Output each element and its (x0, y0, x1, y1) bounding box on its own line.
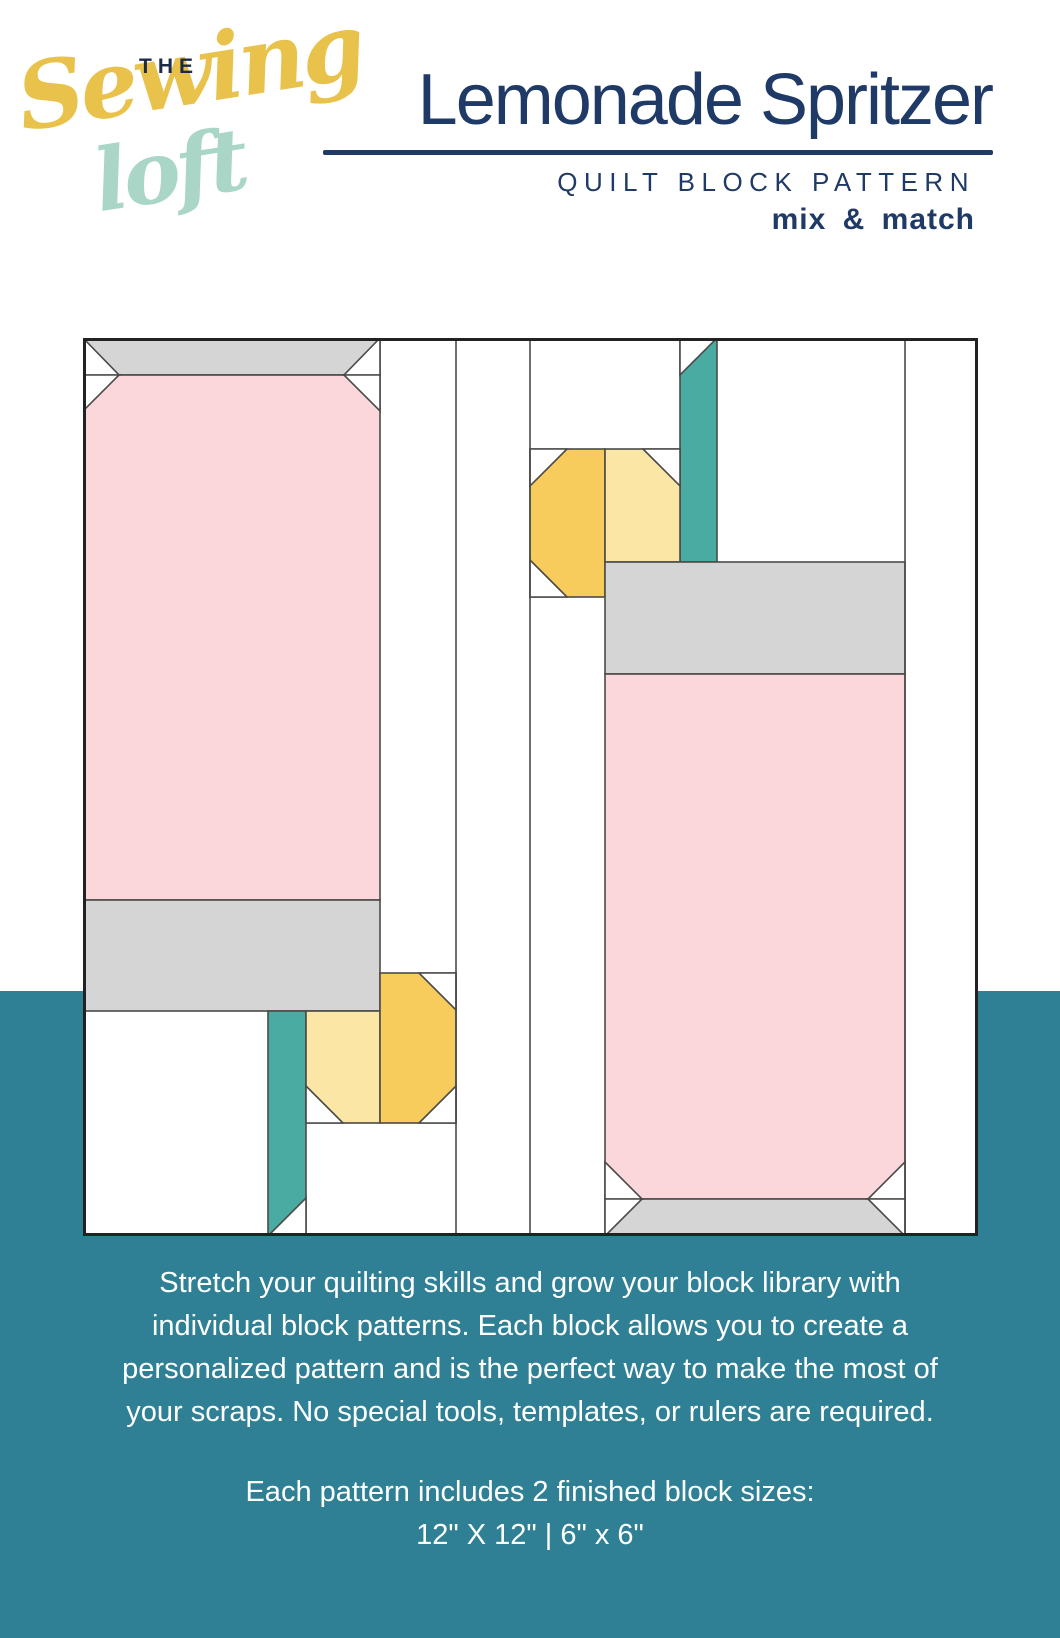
tagline: mix & match (772, 203, 975, 237)
sewing-loft-logo: Sewing loft THE (0, 0, 340, 300)
quilt-block-svg (83, 338, 978, 1236)
left-glass-base (83, 900, 380, 1011)
pattern-cover-page: Sewing loft THE Lemonade Spritzer QUILT … (0, 0, 1060, 1638)
left-straw (268, 1011, 306, 1236)
logo-word-the: THE (139, 55, 199, 79)
block-sizes-value: 12" X 12" | 6" x 6" (0, 1514, 1060, 1557)
right-glass-rim (605, 1199, 905, 1236)
right-glass-body (605, 674, 905, 1199)
right-straw (680, 338, 717, 562)
block-sizes-heading: Each pattern includes 2 finished block s… (0, 1471, 1060, 1514)
left-glass-body (83, 375, 380, 900)
footer-block-sizes: Each pattern includes 2 finished block s… (0, 1471, 1060, 1557)
page-title: Lemonade Spritzer (418, 64, 992, 136)
right-glass-base (605, 562, 905, 674)
footer: Stretch your quilting skills and grow yo… (0, 1262, 1060, 1557)
title-underline (323, 150, 993, 155)
left-glass-rim (83, 338, 380, 375)
footer-description: Stretch your quilting skills and grow yo… (0, 1262, 1060, 1434)
quilt-block-diagram (83, 338, 978, 1236)
logo-word-loft: loft (88, 117, 250, 226)
subtitle: QUILT BLOCK PATTERN (557, 167, 975, 198)
